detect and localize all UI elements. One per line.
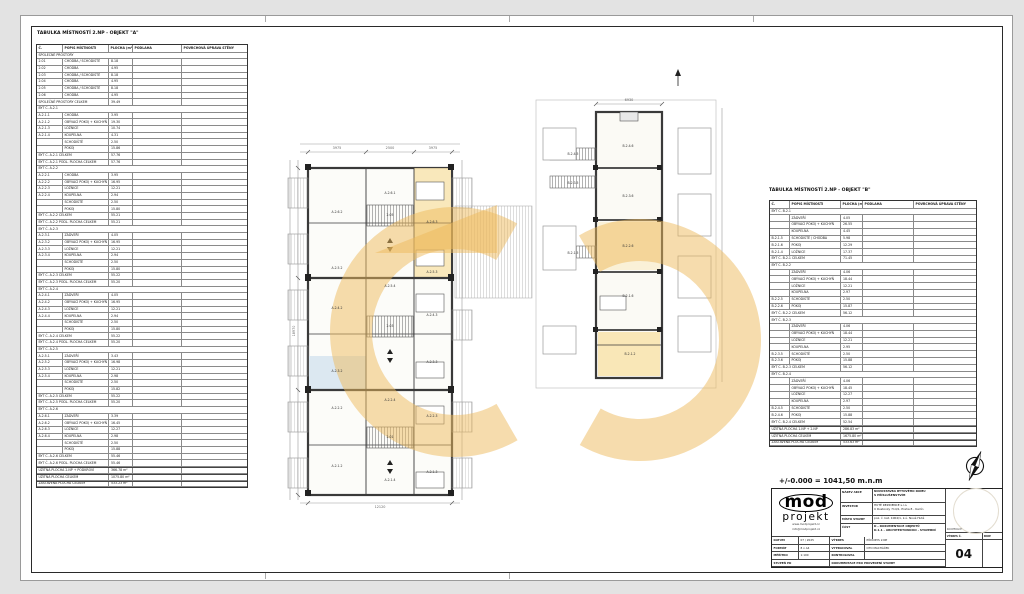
- table-cell: [182, 193, 247, 199]
- fold-mark: [509, 16, 510, 22]
- table-cell: [770, 283, 790, 289]
- table-cell: LOŽNICE: [790, 283, 841, 289]
- table-cell: ZÁDVEŘÍ: [790, 324, 841, 330]
- table-row: BYT Č. A.2.4: [37, 287, 247, 294]
- table-cell: POKOJ: [63, 327, 109, 333]
- table-cell: 55.46: [109, 460, 133, 466]
- table-cell: [133, 200, 182, 206]
- table-cell: OBÝVACÍ POKOJ + KUCHYŇ: [63, 420, 109, 426]
- table-cell: [914, 283, 976, 289]
- table-cell: PLOCHA (m²): [109, 45, 133, 52]
- table-cell: BYT Č. A.2.6: [37, 407, 247, 413]
- table-cell: SCHODIŠTĚ: [63, 440, 109, 446]
- table-cell: SCHODIŠTĚ: [63, 380, 109, 386]
- table-cell: A.2.5.1: [37, 353, 63, 359]
- table-cell: POVRCHOVÁ ÚPRAVA STĚNY: [182, 45, 247, 52]
- table-cell: 12.21: [109, 246, 133, 252]
- table-cell: KOUPELNA: [790, 290, 841, 296]
- table-row: BYT Č. A.2.1 PODL. PLOCHA CELKEM57.76: [37, 160, 247, 167]
- table-row: OBÝVACÍ POKOJ + KUCHYŇ26.55: [770, 222, 976, 229]
- table-cell: OBÝVACÍ POKOJ + KUCHYŇ: [63, 300, 109, 306]
- table-row: LOŽNICE12.27: [770, 392, 976, 399]
- table-row: A.2.2.3LOŽNICE12.21: [37, 186, 247, 193]
- table-cell: BYT Č. A.2.4 PODL. PLOCHA CELKEM: [37, 340, 109, 346]
- table-cell: [770, 331, 790, 337]
- table-cell: [182, 440, 247, 446]
- table-cell: [182, 387, 247, 393]
- table-row: BYT Č. B.2.4 CELKEM52.54: [770, 419, 976, 426]
- table-cell: [133, 146, 182, 152]
- table-cell: 533.63 m²: [841, 441, 863, 446]
- table-cell: [914, 427, 976, 432]
- table-cell: [863, 441, 914, 446]
- table-cell: ZÁDVEŘÍ: [63, 414, 109, 420]
- title-block: mod projekt www.modprojekt.cz info@modpr…: [771, 488, 1003, 568]
- table-cell: [182, 66, 247, 72]
- table-cell: [133, 233, 182, 239]
- meta-value: 07 / 2025: [799, 537, 830, 545]
- table-row: ZÁDVEŘÍ4.06: [770, 270, 976, 277]
- table-cell: 15.88: [841, 358, 863, 364]
- table-row: A.2.2.1CHODBA3.95: [37, 173, 247, 180]
- table-cell: SCHODIŠTĚ: [63, 200, 109, 206]
- table-cell: [863, 331, 914, 337]
- table-cell: [182, 420, 247, 426]
- table-cell: 3.95: [109, 113, 133, 119]
- table-row: A.2.3.1ZÁDVEŘÍ4.05: [37, 233, 247, 240]
- table-cell: [182, 119, 247, 125]
- table-cell: 39.49: [109, 99, 133, 105]
- table-cell: OBÝVACÍ POKOJ + KUCHYŇ: [63, 119, 109, 125]
- table-cell: 2.97: [841, 290, 863, 296]
- table-cell: [133, 313, 182, 319]
- table-cell: 2.50: [109, 200, 133, 206]
- table-row: SCHODIŠTĚ2.50: [37, 260, 247, 267]
- table-cell: SPOLEČNÉ PROSTORY: [37, 53, 247, 59]
- table-cell: [182, 253, 247, 259]
- table-cell: BYT Č. A.2.1 PODL. PLOCHA CELKEM: [37, 160, 109, 166]
- table-row: BYT Č. A.2.2 PODL. PLOCHA CELKEM55.21: [37, 220, 247, 227]
- table-cell: 4.06: [841, 270, 863, 276]
- table-row: UŽITNÁ PLOCHA 1.NP + 2.NP286.83 m²: [770, 426, 976, 433]
- table-cell: [37, 200, 63, 206]
- table-cell: 55.22: [109, 333, 133, 339]
- table-cell: KOUPELNA: [63, 374, 109, 380]
- table-row: A.2.1.3LOŽNICE10.74: [37, 126, 247, 133]
- table-cell: 8.18: [109, 73, 133, 79]
- table-cell: [914, 441, 976, 446]
- logo-ellipse: mod: [779, 494, 832, 512]
- table-cell: B.2.1.5: [770, 236, 790, 242]
- table-cell: PODLAHA: [133, 45, 182, 52]
- table-row: 2.04CHODBA4.95: [37, 79, 247, 86]
- table-cell: [182, 360, 247, 366]
- table-cell: A.2.6.1: [37, 414, 63, 420]
- table-cell: 2.50: [109, 320, 133, 326]
- ghost-logo-area: KOOPERACE: [946, 489, 1002, 533]
- table-cell: 366.78 m²: [109, 468, 133, 473]
- table-cell: OBÝVACÍ POKOJ + KUCHYŇ: [63, 240, 109, 246]
- table-cell: [770, 324, 790, 330]
- table-cell: [133, 260, 182, 266]
- table-cell: UŽITNÁ PLOCHA CELKEM: [37, 475, 109, 480]
- table-cell: 8.18: [109, 86, 133, 92]
- field-label: MÍSTO STAVBY: [841, 516, 873, 523]
- table-cell: [863, 338, 914, 344]
- table-cell: OBÝVACÍ POKOJ + KUCHYŇ: [790, 331, 841, 337]
- table-cell: [182, 133, 247, 139]
- table-row: KOUPELNA2.97: [770, 399, 976, 406]
- table-cell: A.2.1.1: [37, 113, 63, 119]
- table-cell: 2.03: [37, 73, 63, 79]
- table-cell: 57.76: [109, 160, 133, 166]
- logo-email: info@modprojekt.cz: [792, 528, 820, 532]
- table-cell: [133, 273, 182, 279]
- field-label: ČÁST: [841, 524, 873, 539]
- table-row: ZASTAVĚNÁ PLOCHA CELKEM533.23 m²: [37, 481, 247, 488]
- table-cell: 2.50: [109, 139, 133, 145]
- table-cell: [133, 99, 182, 105]
- fold-mark: [265, 16, 266, 22]
- table-cell: 55.20: [109, 340, 133, 346]
- table-cell: 4.06: [841, 378, 863, 384]
- table-cell: [863, 365, 914, 371]
- table-cell: SCHODIŠTĚ: [63, 139, 109, 145]
- table-cell: 16.95: [109, 300, 133, 306]
- table-cell: [770, 270, 790, 276]
- field-value: D - DOKUMENTACE OBJEKTŮ D.1.1 - ARCHITEK…: [873, 524, 945, 539]
- table-cell: [133, 193, 182, 199]
- table-b-title: TABULKA MÍSTNOSTÍ 2.NP - OBJEKT "B": [769, 188, 871, 193]
- table-cell: SCHODIŠTĚ / CHODBA: [790, 236, 841, 242]
- table-cell: [133, 320, 182, 326]
- table-cell: 55.20: [109, 400, 133, 406]
- table-cell: [133, 427, 182, 433]
- field-value: poz. č. kat. 1004/1, k.ú. Nové Hutě: [873, 516, 945, 523]
- table-row: BYT Č. A.2.6: [37, 407, 247, 414]
- table-cell: 2.95: [841, 344, 863, 350]
- table-cell: BYT Č. A.2.4 CELKEM: [37, 333, 109, 339]
- table-row: ZÁDVEŘÍ4.06: [770, 378, 976, 385]
- table-cell: [133, 220, 182, 226]
- table-cell: [182, 246, 247, 252]
- table-cell: 16.95: [109, 180, 133, 186]
- table-cell: 5.98: [841, 236, 863, 242]
- table-row: ZASTAVĚNÁ PLOCHA CELKEM533.63 m²: [770, 440, 976, 447]
- table-cell: 4.05: [841, 215, 863, 221]
- table-cell: [914, 385, 976, 391]
- table-cell: BYT Č. A.2.5 PODL. PLOCHA CELKEM: [37, 400, 109, 406]
- table-cell: 4.05: [109, 293, 133, 299]
- table-cell: B.2.1.4: [770, 249, 790, 255]
- table-cell: [863, 229, 914, 235]
- table-cell: [182, 73, 247, 79]
- table-cell: BYT Č. A.2.2 PODL. PLOCHA CELKEM: [37, 220, 109, 226]
- table-cell: [182, 126, 247, 132]
- table-cell: 4.95: [109, 66, 133, 72]
- table-cell: KOUPELNA: [63, 313, 109, 319]
- table-cell: ZASTAVĚNÁ PLOCHA CELKEM: [770, 441, 841, 446]
- table-cell: [914, 249, 976, 255]
- table-row: POKOJ15.86: [37, 146, 247, 153]
- stupen-label: STUPEŇ PD: [772, 560, 830, 568]
- table-cell: PLOCHA (m²): [841, 201, 863, 208]
- table-cell: 26.55: [841, 222, 863, 228]
- table-cell: BYT Č. A.2.2: [37, 166, 247, 172]
- table-cell: [182, 460, 247, 466]
- table-cell: CHODBA: [63, 66, 109, 72]
- table-cell: BYT Č. B.2.2: [770, 263, 976, 269]
- table-cell: CHODBA: [63, 113, 109, 119]
- field-value: NOVOSTAVBA BYTOVÉHO DOMU S PŘÍSLUŠENSTVÍ…: [873, 489, 945, 502]
- table-cell: [182, 300, 247, 306]
- table-row: BYT Č. A.2.2 CELKEM55.21: [37, 213, 247, 220]
- table-cell: [37, 260, 63, 266]
- meta-label: FORMÁT: [772, 545, 799, 553]
- table-cell: LOŽNICE: [63, 246, 109, 252]
- table-cell: 18.44: [841, 276, 863, 282]
- table-row: ZÁDVEŘÍ4.05: [770, 215, 976, 222]
- table-cell: A.2.3.2: [37, 240, 63, 246]
- table-cell: [133, 447, 182, 453]
- elevation-note: +/-0.000 = 1041,50 m.n.m: [779, 477, 882, 485]
- table-cell: BYT Č. B.2.4: [770, 372, 976, 378]
- table-cell: B.2.1.6: [770, 242, 790, 248]
- table-cell: [914, 256, 976, 262]
- table-cell: [182, 113, 247, 119]
- table-cell: 15.88: [841, 412, 863, 418]
- table-row: POKOJ15.80: [37, 327, 247, 334]
- table-cell: [863, 324, 914, 330]
- table-cell: BYT Č. A.2.3 PODL. PLOCHA CELKEM: [37, 280, 109, 286]
- table-cell: [914, 215, 976, 221]
- table-cell: OBÝVACÍ POKOJ + KUCHYŇ: [63, 360, 109, 366]
- table-cell: [182, 200, 247, 206]
- table-cell: 55.21: [109, 213, 133, 219]
- table-cell: 55.21: [109, 220, 133, 226]
- table-cell: 286.83 m²: [841, 427, 863, 432]
- table-cell: ZÁDVEŘÍ: [63, 293, 109, 299]
- table-row: A.2.3.3LOŽNICE12.21: [37, 246, 247, 253]
- room-table-objekt-b: Č.POPIS MÍSTNOSTIPLOCHA (m²)PODLAHAPOVRC…: [769, 200, 977, 447]
- table-row: POKOJ15.80: [37, 267, 247, 274]
- table-cell: [133, 153, 182, 159]
- table-cell: [133, 206, 182, 212]
- table-row: BYT Č. B.2.4: [770, 372, 976, 379]
- table-cell: LOŽNICE: [63, 427, 109, 433]
- table-cell: A.2.6.4: [37, 434, 63, 440]
- table-cell: [133, 180, 182, 186]
- table-cell: ZÁDVEŘÍ: [790, 270, 841, 276]
- table-row: BYT Č. A.2.5: [37, 347, 247, 354]
- table-cell: [914, 434, 976, 439]
- table-row: BYT Č. A.2.5 PODL. PLOCHA CELKEM55.20: [37, 400, 247, 407]
- table-cell: [133, 246, 182, 252]
- table-cell: A.2.6.2: [37, 420, 63, 426]
- table-cell: [182, 153, 247, 159]
- table-cell: [770, 385, 790, 391]
- table-cell: SCHODIŠTĚ: [790, 351, 841, 357]
- table-cell: [133, 333, 182, 339]
- table-cell: [133, 420, 182, 426]
- table-cell: CHODBA: [63, 173, 109, 179]
- table-cell: [37, 440, 63, 446]
- table-cell: Č.: [770, 201, 790, 208]
- table-cell: 16.45: [109, 420, 133, 426]
- table-cell: [770, 229, 790, 235]
- table-cell: [37, 447, 63, 453]
- table-cell: [863, 236, 914, 242]
- table-cell: [182, 454, 247, 460]
- table-cell: 2.50: [841, 351, 863, 357]
- table-cell: UŽITNÁ PLOCHA 1.NP + 2.NP: [770, 427, 841, 432]
- table-row: LOŽNICE12.21: [770, 283, 976, 290]
- table-cell: [182, 260, 247, 266]
- drawing-canvas: A.2.6.2A.2.6.1A.2.6.32.05A.2.5.2A.2.5.4A…: [0, 0, 1024, 594]
- table-row: BYT Č. A.2.2: [37, 166, 247, 173]
- table-cell: [182, 180, 247, 186]
- table-cell: 2.98: [109, 374, 133, 380]
- table-cell: B.2.2.5: [770, 297, 790, 303]
- table-cell: [133, 468, 182, 473]
- table-row: ZÁDVEŘÍ4.06: [770, 324, 976, 331]
- table-cell: A.2.2.1: [37, 173, 63, 179]
- table-row: POKOJ15.82: [37, 387, 247, 394]
- table-cell: [133, 66, 182, 72]
- table-cell: [914, 290, 976, 296]
- table-row: A.2.4.2OBÝVACÍ POKOJ + KUCHYŇ16.95: [37, 300, 247, 307]
- table-cell: CHODBA / SCHODIŠTĚ: [63, 86, 109, 92]
- table-cell: 56.12: [841, 365, 863, 371]
- table-cell: 15.80: [109, 206, 133, 212]
- table-cell: OBÝVACÍ POKOJ + KUCHYŇ: [790, 385, 841, 391]
- table-cell: OBÝVACÍ POKOJ + KUCHYŇ: [790, 222, 841, 228]
- table-row: KOUPELNA2.97: [770, 290, 976, 297]
- table-row: BYT Č. A.2.3 CELKEM55.22: [37, 273, 247, 280]
- table-cell: [133, 213, 182, 219]
- table-cell: [133, 119, 182, 125]
- table-row: SPOLEČNÉ PROSTORY: [37, 53, 247, 60]
- table-cell: [914, 236, 976, 242]
- table-cell: BYT Č. A.2.5 CELKEM: [37, 394, 109, 400]
- table-row: BYT Č. A.2.1: [37, 106, 247, 113]
- table-cell: [914, 324, 976, 330]
- table-cell: [133, 267, 182, 273]
- table-cell: POKOJ: [790, 358, 841, 364]
- table-row: BYT Č. A.2.6 CELKEM55.46: [37, 454, 247, 461]
- table-cell: [914, 344, 976, 350]
- table-cell: 10.74: [109, 126, 133, 132]
- table-row: LOŽNICE12.21: [770, 338, 976, 345]
- table-row: A.2.1.1CHODBA3.95: [37, 113, 247, 120]
- table-row: 2.01CHODBA / SCHODIŠTĚ8.18: [37, 59, 247, 66]
- table-cell: [182, 139, 247, 145]
- table-cell: ZÁDVEŘÍ: [790, 378, 841, 384]
- table-cell: 56.12: [841, 310, 863, 316]
- table-cell: 52.54: [841, 419, 863, 425]
- table-cell: [37, 320, 63, 326]
- table-row: BYT Č. A.2.3 PODL. PLOCHA CELKEM55.20: [37, 280, 247, 287]
- table-cell: [914, 222, 976, 228]
- table-row: BYT Č. B.2.2 CELKEM56.12: [770, 310, 976, 317]
- table-cell: [182, 220, 247, 226]
- table-cell: A.2.4.3: [37, 307, 63, 313]
- table-cell: [182, 240, 247, 246]
- table-cell: KOUPELNA: [790, 229, 841, 235]
- table-cell: LOŽNICE: [790, 249, 841, 255]
- table-row: BYT Č. A.2.6 PODL. PLOCHA CELKEM55.46: [37, 460, 247, 467]
- table-cell: [182, 206, 247, 212]
- table-cell: 2.98: [109, 434, 133, 440]
- table-cell: [182, 427, 247, 433]
- table-cell: [182, 353, 247, 359]
- table-cell: A.2.5.2: [37, 360, 63, 366]
- table-cell: 19.30: [109, 119, 133, 125]
- table-cell: SCHODIŠTĚ: [63, 260, 109, 266]
- table-cell: [863, 419, 914, 425]
- table-cell: [133, 414, 182, 420]
- table-cell: 1675.80 m²: [841, 434, 863, 439]
- table-cell: A.2.2.3: [37, 186, 63, 192]
- table-cell: 16.98: [109, 360, 133, 366]
- table-cell: [863, 344, 914, 350]
- table-cell: [770, 215, 790, 221]
- table-cell: [863, 304, 914, 310]
- table-cell: [133, 280, 182, 286]
- table-cell: 55.46: [109, 454, 133, 460]
- table-row: POKOJ15.80: [37, 206, 247, 213]
- table-cell: 2.01: [37, 59, 63, 65]
- table-cell: [863, 283, 914, 289]
- table-cell: [133, 440, 182, 446]
- table-cell: A.2.1.4: [37, 133, 63, 139]
- table-cell: [182, 380, 247, 386]
- table-cell: [37, 139, 63, 145]
- table-cell: B.2.4.6: [770, 412, 790, 418]
- table-cell: ZÁDVEŘÍ: [790, 215, 841, 221]
- table-cell: [133, 353, 182, 359]
- table-cell: [37, 206, 63, 212]
- table-cell: [863, 276, 914, 282]
- table-cell: [133, 86, 182, 92]
- table-cell: [37, 380, 63, 386]
- table-cell: A.2.1.3: [37, 126, 63, 132]
- table-cell: [133, 367, 182, 373]
- logo-text-mod: mod: [784, 495, 827, 510]
- table-cell: 4.95: [109, 79, 133, 85]
- table-row: A.2.2.4KOUPELNA2.94: [37, 193, 247, 200]
- table-cell: [914, 270, 976, 276]
- table-cell: [182, 186, 247, 192]
- table-cell: [133, 160, 182, 166]
- table-cell: A.2.1.2: [37, 119, 63, 125]
- table-cell: 2.50: [841, 297, 863, 303]
- meta-label: MĚŘÍTKO: [772, 552, 799, 560]
- table-cell: [863, 310, 914, 316]
- table-cell: [914, 378, 976, 384]
- field-label: NÁZEV AKCE: [841, 489, 873, 502]
- table-row: UŽITNÁ PLOCHA 2.NP + PODKROVÍ366.78 m²: [37, 467, 247, 474]
- table-cell: [182, 99, 247, 105]
- table-cell: LOŽNICE: [63, 367, 109, 373]
- table-cell: [133, 293, 182, 299]
- table-cell: [133, 133, 182, 139]
- table-cell: [914, 351, 976, 357]
- table-cell: [37, 267, 63, 273]
- table-cell: 2.04: [37, 79, 63, 85]
- table-row: A.2.5.2OBÝVACÍ POKOJ + KUCHYŇ16.98: [37, 360, 247, 367]
- room-table-objekt-a: Č.POPIS MÍSTNOSTIPLOCHA (m²)PODLAHAPOVRC…: [36, 44, 248, 488]
